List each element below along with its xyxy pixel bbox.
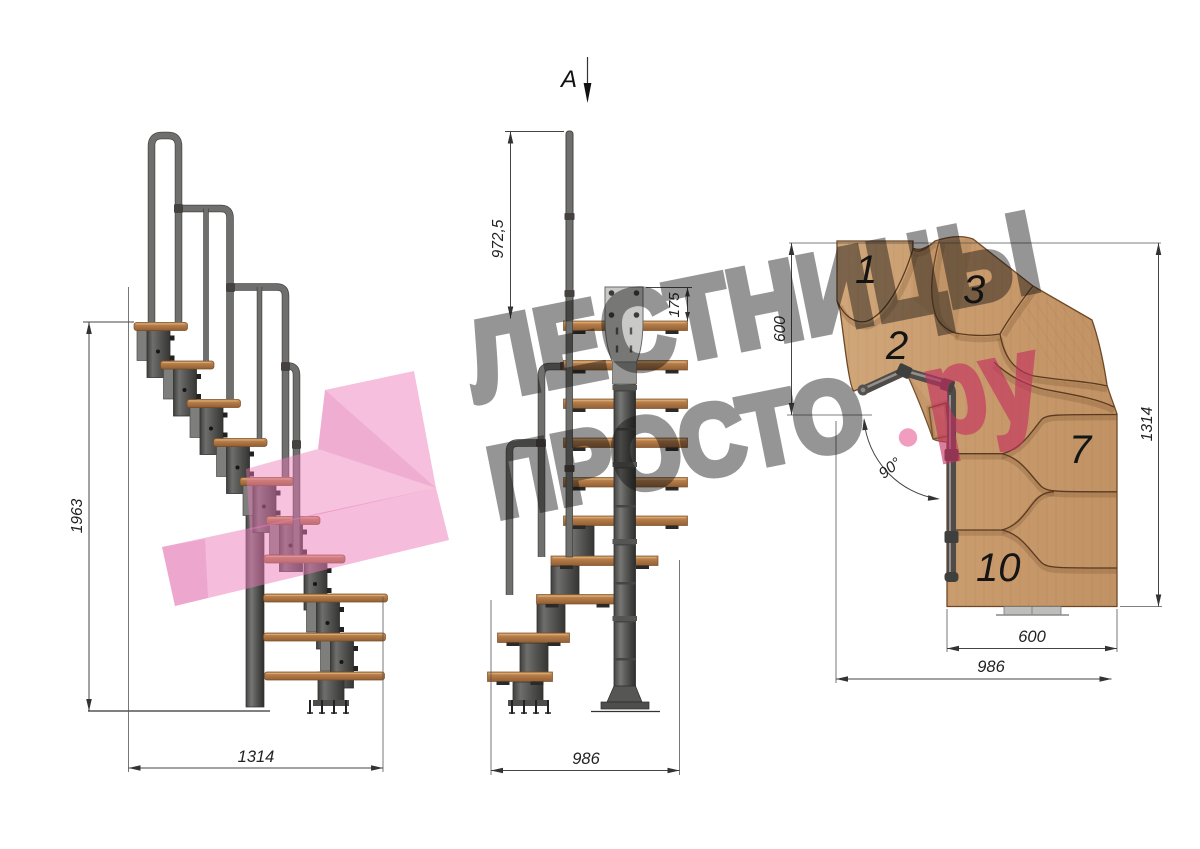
svg-text:А: А xyxy=(559,66,577,93)
svg-text:986: 986 xyxy=(977,658,1005,676)
svg-text:600: 600 xyxy=(1018,628,1046,646)
svg-text:1314: 1314 xyxy=(1139,406,1156,441)
svg-text:1963: 1963 xyxy=(69,498,86,533)
svg-text:972,5: 972,5 xyxy=(490,219,507,258)
svg-text:7: 7 xyxy=(1069,428,1093,472)
svg-text:986: 986 xyxy=(572,750,600,768)
svg-text:1314: 1314 xyxy=(238,748,275,766)
svg-text:10: 10 xyxy=(976,546,1021,590)
